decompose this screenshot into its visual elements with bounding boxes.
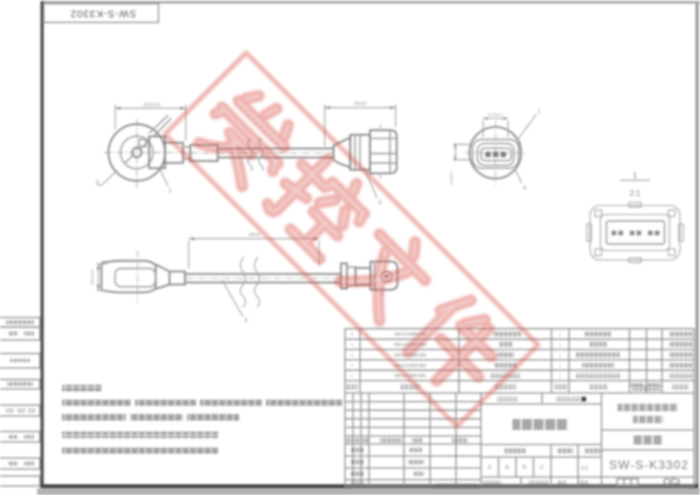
svg-text:4: 4: [523, 186, 526, 192]
svg-text:5: 5: [244, 318, 247, 324]
svg-text:4: 4: [351, 343, 353, 347]
svg-text:1:1: 1:1: [581, 466, 588, 472]
svg-text:1: 1: [559, 353, 561, 357]
svg-text:28.5±0.5: 28.5±0.5: [90, 268, 95, 284]
svg-text:3: 3: [378, 200, 381, 206]
svg-text:1: 1: [559, 374, 561, 378]
svg-text:1: 1: [559, 364, 561, 368]
svg-text:14.8±0.1: 14.8±0.1: [450, 171, 454, 186]
svg-text:380±5: 380±5: [249, 232, 262, 237]
svg-text:5: 5: [351, 333, 353, 337]
svg-text:1: 1: [633, 171, 638, 180]
svg-text:3: 3: [351, 353, 353, 357]
svg-text:C: C: [540, 465, 544, 471]
svg-text:1: 1: [351, 374, 353, 378]
svg-text:(62±2): (62±2): [354, 101, 367, 106]
svg-text:(63±0.5): (63±0.5): [144, 102, 161, 107]
svg-text:1: 1: [537, 109, 540, 115]
svg-text:1: 1: [559, 343, 561, 347]
svg-text:1: 1: [168, 189, 171, 195]
svg-text:2: 2: [351, 364, 353, 368]
svg-text:B: B: [523, 465, 527, 471]
svg-text:A: A: [505, 465, 509, 471]
svg-text:22.6±0.1: 22.6±0.1: [488, 113, 503, 117]
svg-text:SW-S-K3302: SW-S-K3302: [70, 7, 136, 18]
svg-text:1: 1: [559, 333, 561, 337]
svg-text:2:1: 2:1: [629, 189, 641, 198]
svg-text:S: S: [488, 465, 492, 471]
svg-text:2: 2: [96, 180, 99, 186]
svg-text:SW-S-K3302: SW-S-K3302: [609, 458, 689, 472]
